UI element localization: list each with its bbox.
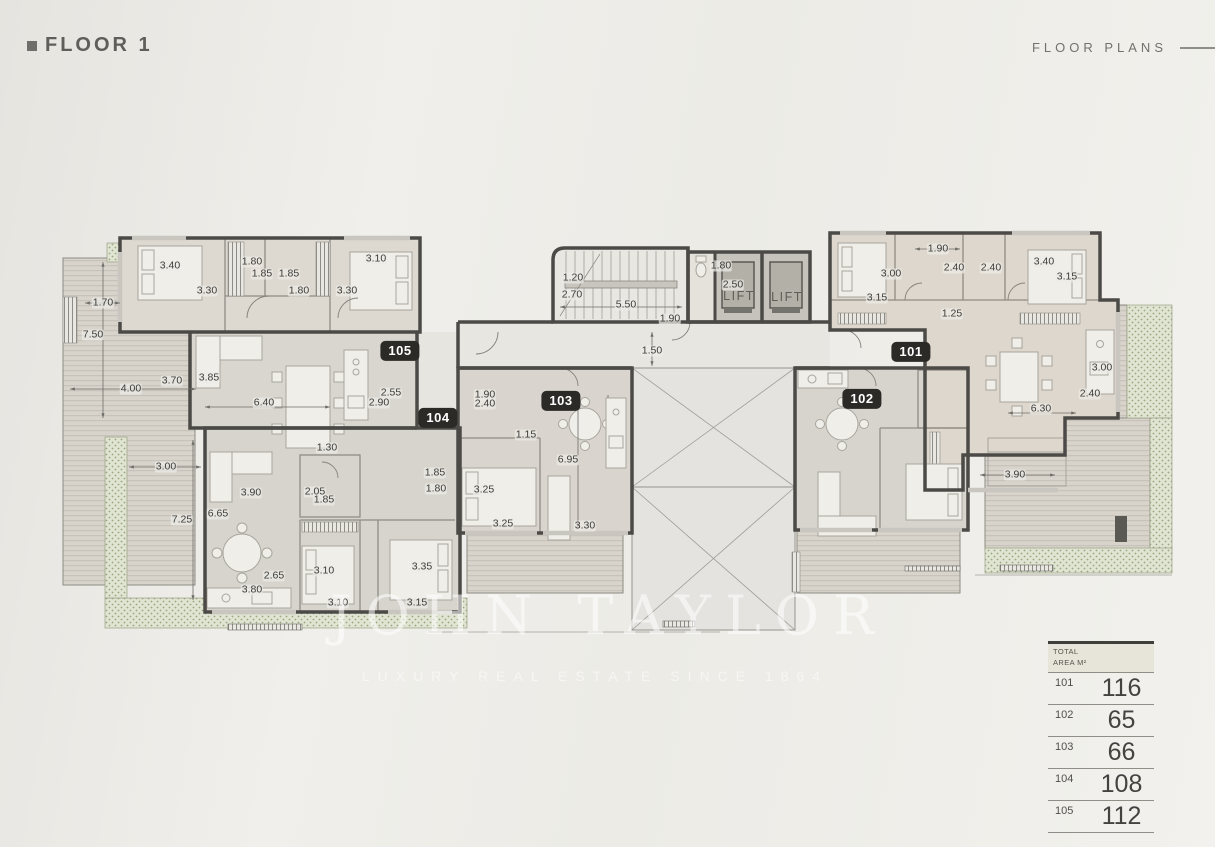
floor-plan-drawing (0, 0, 1215, 847)
area-table-row-102: 10265 (1048, 705, 1154, 737)
floor-plan-page: FLOOR 1 FLOOR PLANS (0, 0, 1215, 847)
area-table-value: 108 (1089, 769, 1154, 799)
area-table-header: TOTAL AREA M² (1048, 644, 1154, 673)
area-table-unit: 105 (1048, 801, 1089, 817)
watermark-brand: JOHN TAYLOR (330, 584, 860, 647)
unit-105-entry (417, 332, 458, 428)
area-table-value: 112 (1089, 801, 1154, 831)
area-table-unit: 102 (1048, 705, 1089, 721)
terrace-planter-box (1115, 516, 1127, 542)
area-table-row-101: 101116 (1048, 673, 1154, 705)
area-table-unit: 101 (1048, 673, 1089, 689)
area-table-value: 66 (1089, 737, 1154, 767)
area-table: TOTAL AREA M² 10111610265103661041081051… (1048, 641, 1154, 833)
area-table-unit: 104 (1048, 769, 1089, 785)
area-table-row-104: 104108 (1048, 769, 1154, 801)
area-table-unit: 103 (1048, 737, 1089, 753)
area-table-value: 116 (1089, 673, 1154, 703)
area-table-header-line2: AREA M² (1053, 658, 1150, 669)
area-table-value: 65 (1089, 705, 1154, 735)
corridor (458, 322, 830, 368)
area-table-row-103: 10366 (1048, 737, 1154, 769)
area-table-header-line1: TOTAL (1053, 647, 1150, 658)
watermark-tagline: LUXURY REAL ESTATE SINCE 1864 (330, 668, 860, 684)
area-table-row-105: 105112 (1048, 801, 1154, 833)
